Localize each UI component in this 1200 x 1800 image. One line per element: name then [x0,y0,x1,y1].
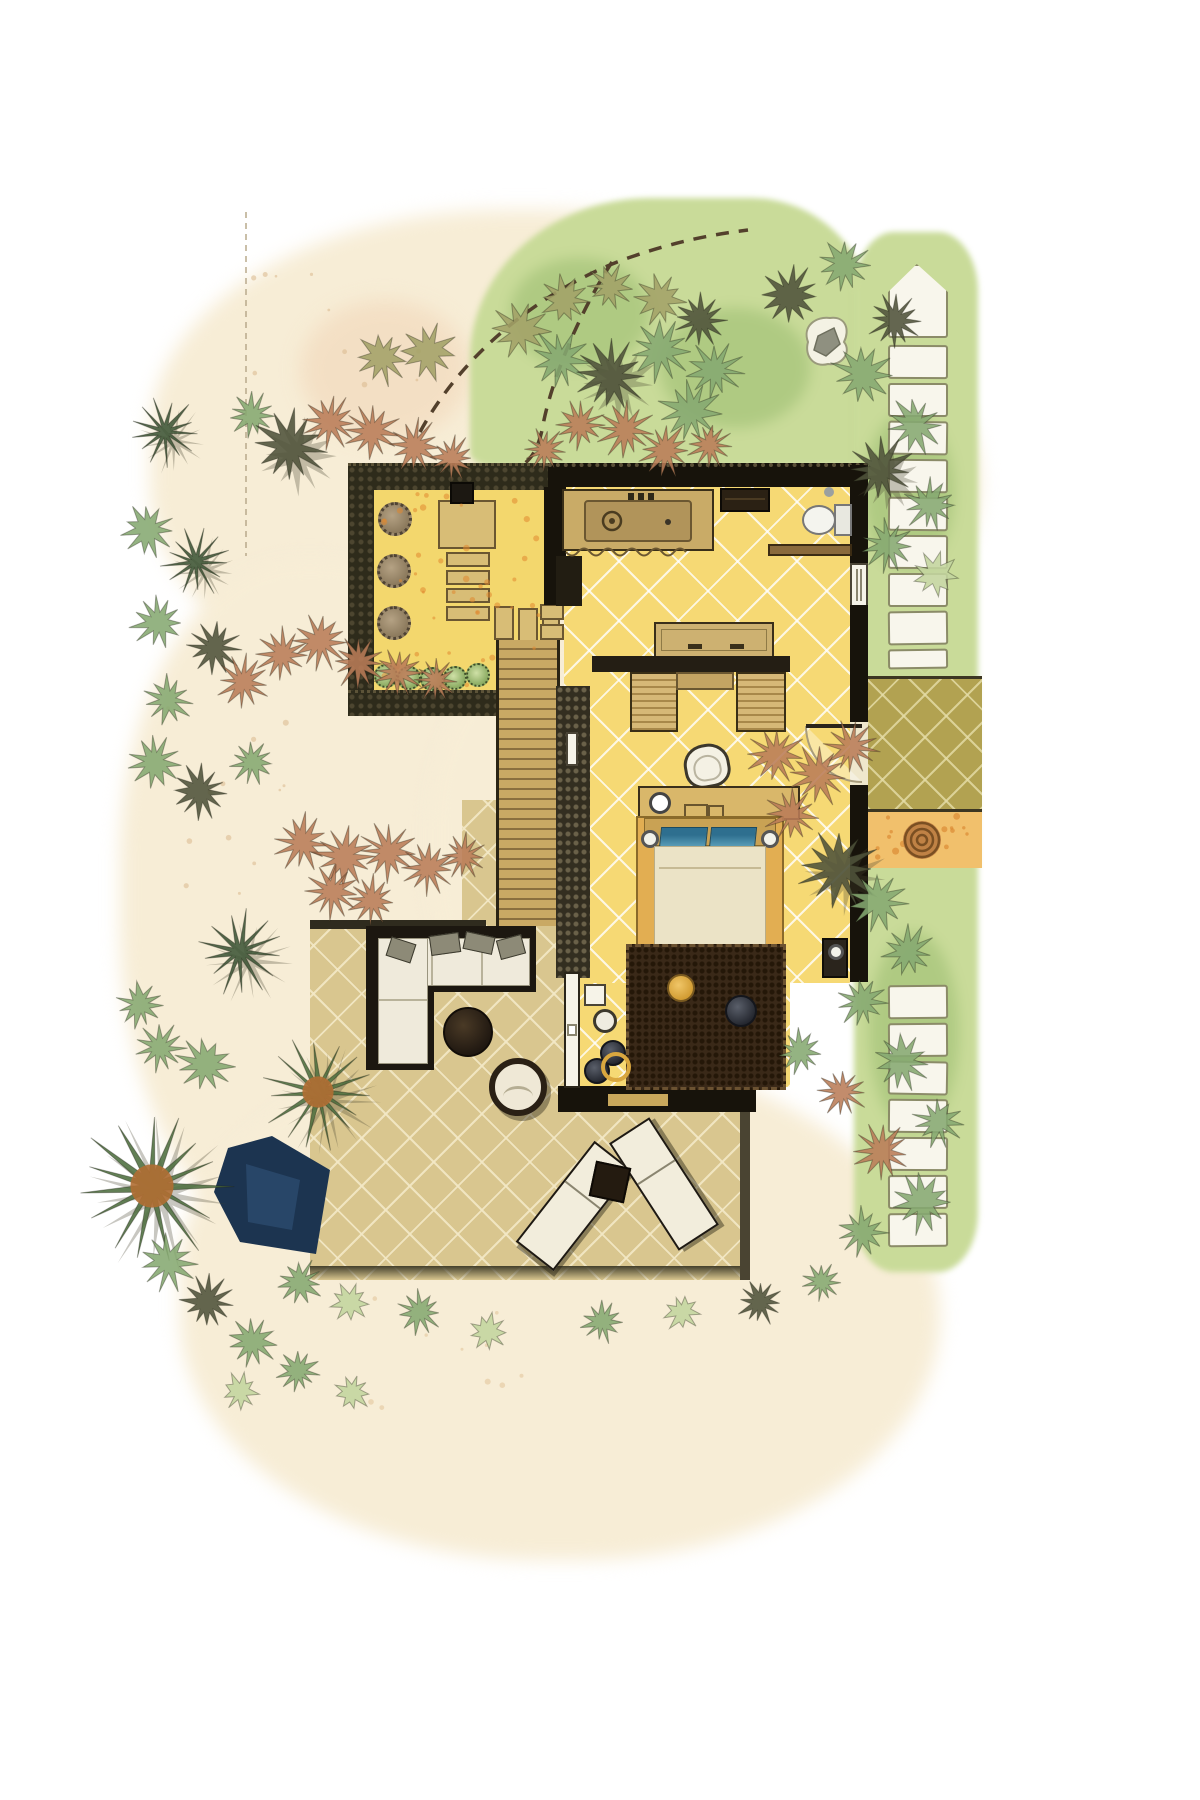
timber-boardwalk [496,640,560,926]
stepping-stone [888,1137,948,1171]
floor-pouf [725,995,757,1027]
deck-edge [310,1266,750,1280]
shag-rug [626,944,786,1090]
side-table [584,984,606,1006]
border-bush [443,666,467,690]
stepping-stone [888,345,948,379]
stepping-stone [888,421,948,456]
courtyard-hedge-bottom [348,690,496,716]
closet-left [630,672,678,732]
water-feature [450,482,474,504]
sliding-glass-door [564,972,580,1088]
garden-step [446,606,490,621]
yellow-ring [601,1052,631,1082]
stepping-stone [888,611,948,646]
east-wall [850,605,868,723]
stepping-stone [888,383,948,417]
mattress [654,846,766,952]
east-wall [850,465,868,565]
stepping-stone [888,573,948,607]
east-door-opening [850,722,868,786]
bath-bench [720,488,770,512]
garden-step [446,588,490,603]
stepping-stone [888,1175,948,1209]
stepping-stone [888,535,948,569]
stepping-stone [888,1213,948,1248]
stepping-stone [888,985,948,1020]
toilet-tank [834,504,852,536]
stepping-stone [888,1099,948,1133]
clipped-shrub [377,554,411,588]
border-bush [397,666,421,690]
garden-step [494,606,514,640]
bedside-lamp [649,792,671,814]
garden-step [540,624,564,640]
lawn-top [470,198,872,466]
closet-right [736,672,786,732]
garden-step [446,552,490,567]
border-bush [420,667,444,691]
north-wall [548,463,868,487]
toilet-button [824,487,834,497]
stepping-stone [888,649,948,670]
round-rattan-chair [489,1058,547,1116]
vanity-partition [592,656,790,672]
bathtub [584,500,692,542]
entry-mat-strip [866,812,982,868]
south-wall-inset [608,1094,668,1106]
stepping-stone [888,1023,948,1057]
sofa-throw-pillow [429,932,461,956]
deck-edge [740,1112,750,1280]
lounger-headrest-line [637,1160,675,1186]
palm-crown-center [130,1164,173,1207]
closet-middle-shelf [676,672,734,690]
cabinet-dial [828,944,844,960]
border-bush [374,664,398,688]
stepping-stone [888,459,948,493]
vanity-counter [654,622,774,658]
border-bush [466,663,490,687]
clipped-shrub [377,606,411,640]
garden-step [540,604,564,620]
garden-tree [129,595,181,648]
door-jamb [566,732,578,766]
toilet-partition [768,544,852,556]
lounger-side-table [589,1161,632,1204]
pebble-strip [556,686,590,978]
white-ring-pot [593,1009,617,1033]
toilet-bowl [802,505,836,535]
round-stool [667,974,695,1002]
garden-step [446,570,490,585]
entry-porch-deck [868,676,982,812]
courtyard-hedge-left [348,463,374,716]
garden-step [518,608,538,642]
west-pillar [556,556,582,606]
stepping-stone [888,1060,949,1095]
site-plan-canvas [0,0,1200,1800]
terrace-pouf-table [443,1007,493,1057]
sand-tint [300,300,470,440]
shower-platform [438,500,496,549]
clipped-shrub [378,502,412,536]
stepping-stone [888,497,948,532]
east-wall [850,785,868,982]
east-window [850,563,868,607]
